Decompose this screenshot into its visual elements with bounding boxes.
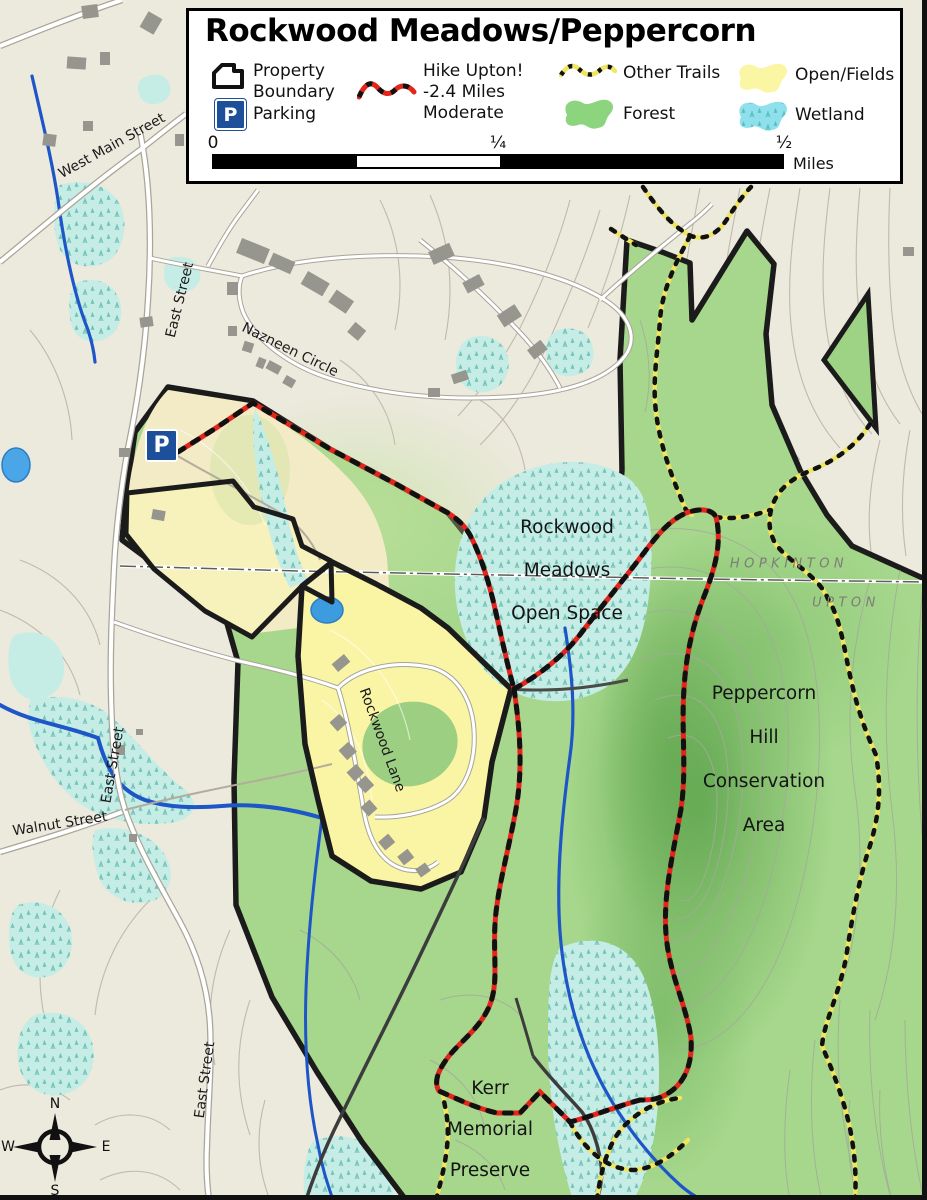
legend-panel: Rockwood Meadows/Peppercorn Property Bou… [186, 8, 903, 184]
property-boundary-icon [209, 59, 247, 95]
area-label-peppercorn-hill: Peppercorn Hill Conservation Area [703, 672, 825, 848]
scale-unit-label: Miles [793, 154, 834, 173]
compass-w-label: W [1, 1139, 15, 1155]
scale-tick-half: ½ [776, 133, 792, 153]
wetland-icon [731, 95, 791, 137]
other-trails-icon [559, 61, 617, 83]
compass-n-label: N [50, 1096, 60, 1112]
legend-parking-icon: P [215, 99, 246, 130]
area-label-rockwood-meadows: Rockwood Meadows Open Space [511, 506, 623, 635]
scale-bar [212, 154, 784, 169]
legend-other-trails-label: Other Trails [623, 63, 720, 84]
map-title: Rockwood Meadows/Peppercorn [205, 13, 756, 49]
legend-property-boundary-label: Property Boundary [253, 61, 335, 103]
legend-wetland-label: Wetland [795, 105, 865, 126]
area-label-kerr-memorial: Kerr Memorial Preserve [447, 1068, 533, 1191]
compass-s-label: S [51, 1183, 60, 1199]
parking-marker: P [145, 429, 178, 462]
forest-icon [557, 93, 617, 135]
compass-e-label: E [102, 1139, 111, 1155]
town-label-hopkinton: HOPKINTON [730, 557, 848, 572]
open-fields-icon [731, 57, 791, 99]
scale-tick-quarter: ¼ [490, 133, 506, 153]
hike-trail-icon [357, 77, 417, 105]
legend-parking-label: Parking [253, 104, 316, 125]
town-label-upton: UPTON [812, 596, 880, 611]
legend-hike-trail-label: Hike Upton! -2.4 Miles Moderate [423, 61, 524, 124]
scale-tick-0: 0 [208, 133, 219, 153]
trail-map-page: Rockwood Meadows/Peppercorn Property Bou… [0, 0, 927, 1200]
legend-forest-label: Forest [623, 104, 675, 125]
legend-open-fields-label: Open/Fields [795, 65, 894, 86]
